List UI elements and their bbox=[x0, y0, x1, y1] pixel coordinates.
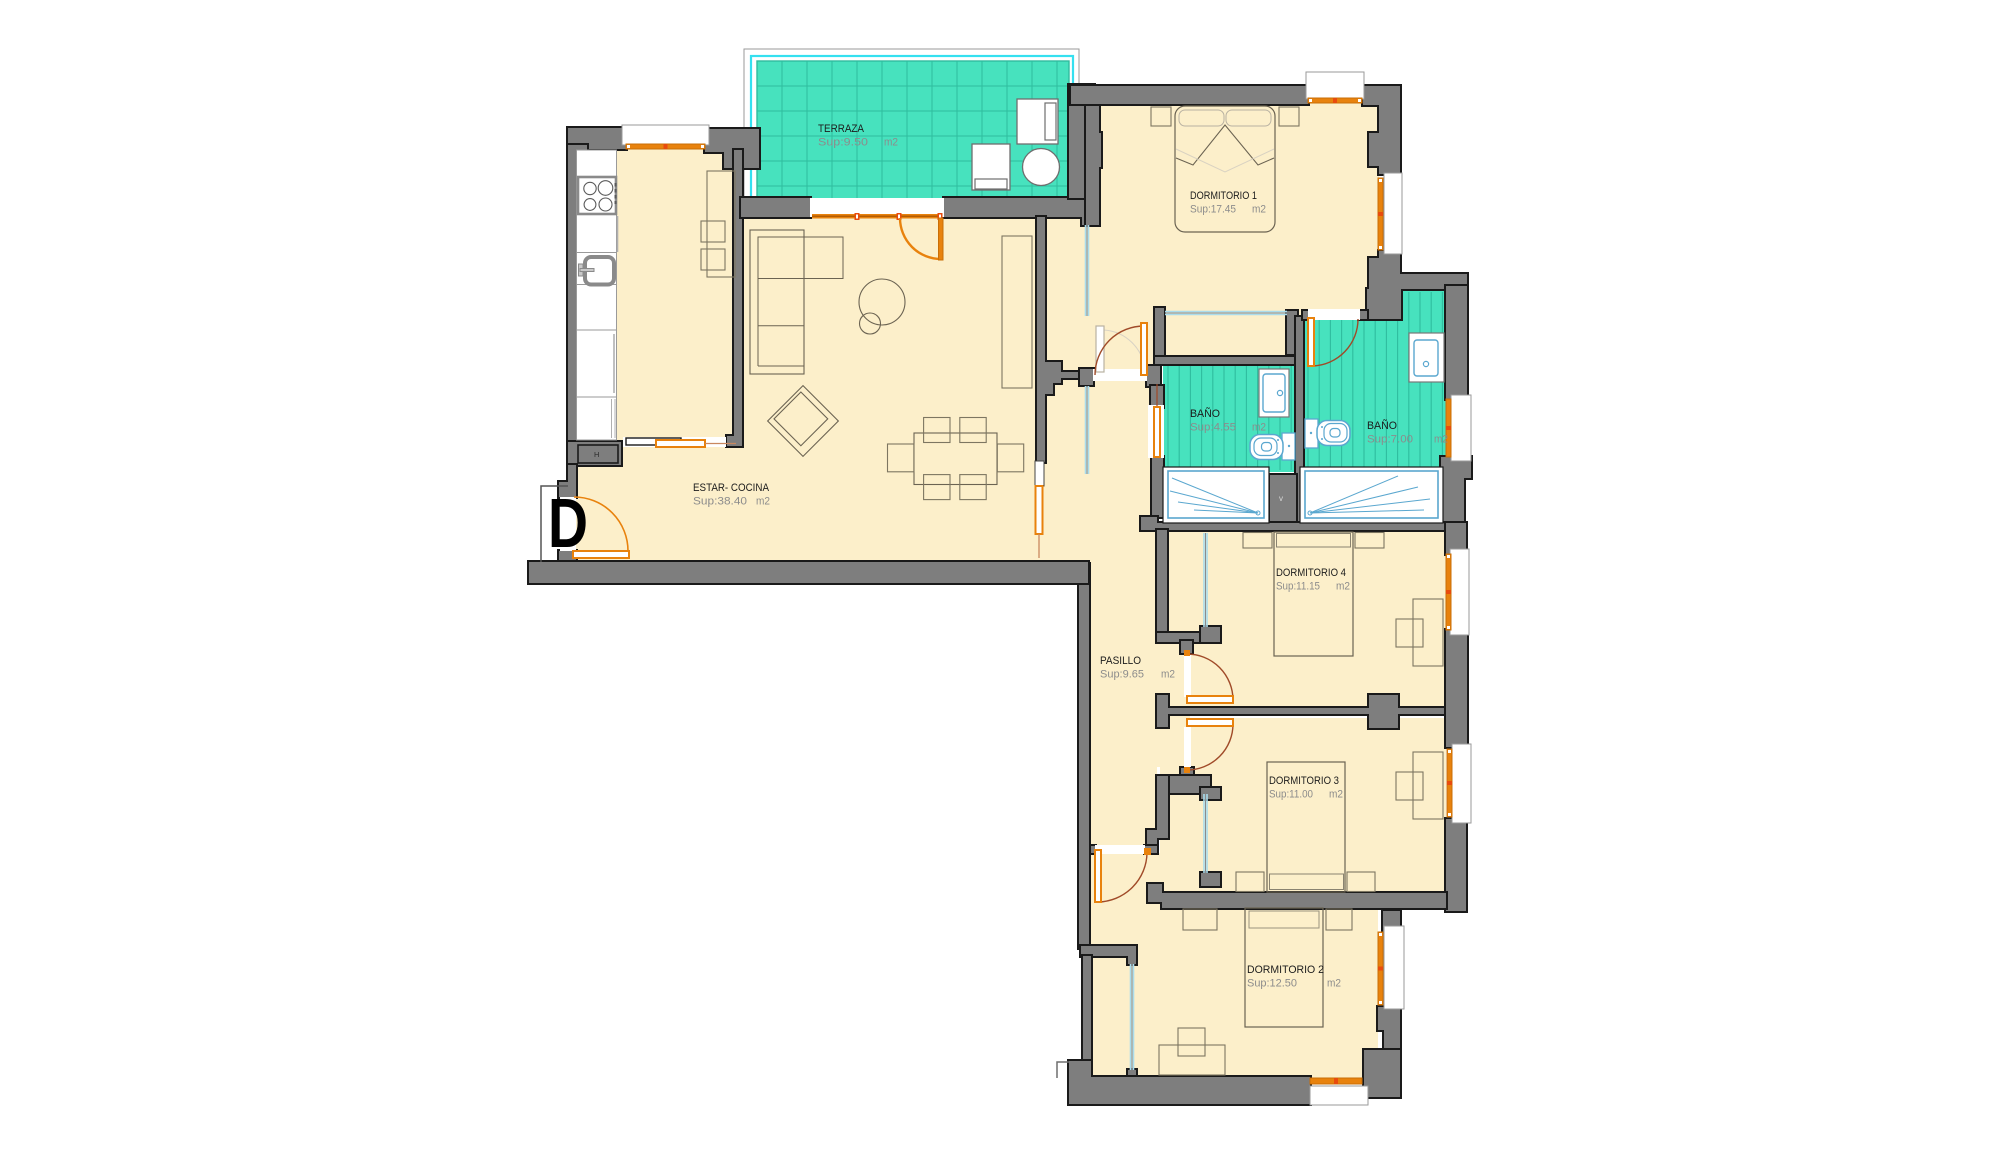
svg-text:Sup:12.50: Sup:12.50 bbox=[1247, 978, 1297, 990]
svg-text:BAÑO: BAÑO bbox=[1367, 419, 1397, 432]
svg-text:DORMITORIO 1: DORMITORIO 1 bbox=[1190, 190, 1257, 202]
svg-text:PASILLO: PASILLO bbox=[1100, 655, 1141, 667]
svg-text:m2: m2 bbox=[1252, 422, 1266, 434]
svg-text:Sup:11.00: Sup:11.00 bbox=[1269, 789, 1313, 801]
svg-text:Sup:17.45: Sup:17.45 bbox=[1190, 204, 1236, 216]
svg-text:Sup:4.55: Sup:4.55 bbox=[1190, 422, 1236, 434]
svg-text:TERRAZA: TERRAZA bbox=[818, 123, 865, 135]
svg-text:BAÑO: BAÑO bbox=[1190, 407, 1220, 420]
svg-text:DORMITORIO 4: DORMITORIO 4 bbox=[1276, 567, 1346, 579]
svg-text:v: v bbox=[1279, 494, 1283, 503]
svg-text:m2: m2 bbox=[1327, 978, 1341, 990]
svg-text:m2: m2 bbox=[756, 496, 770, 508]
svg-text:Sup:9.65: Sup:9.65 bbox=[1100, 669, 1144, 681]
svg-text:H: H bbox=[594, 450, 599, 459]
svg-text:DORMITORIO 3: DORMITORIO 3 bbox=[1269, 775, 1339, 787]
svg-text:ESTAR- COCINA: ESTAR- COCINA bbox=[693, 482, 770, 494]
svg-text:m2: m2 bbox=[1336, 581, 1350, 593]
svg-text:Sup:11.15: Sup:11.15 bbox=[1276, 581, 1320, 593]
svg-text:DORMITORIO 2: DORMITORIO 2 bbox=[1247, 964, 1324, 976]
svg-text:Sup:7.00: Sup:7.00 bbox=[1367, 434, 1413, 446]
svg-text:m2: m2 bbox=[884, 137, 898, 149]
svg-text:Sup:9.50: Sup:9.50 bbox=[818, 137, 868, 149]
svg-text:m2: m2 bbox=[1161, 669, 1175, 681]
svg-text:m2: m2 bbox=[1252, 204, 1266, 216]
svg-text:m2: m2 bbox=[1434, 434, 1448, 446]
svg-text:D: D bbox=[548, 484, 588, 562]
svg-text:m2: m2 bbox=[1329, 789, 1343, 801]
svg-text:Sup:38.40: Sup:38.40 bbox=[693, 496, 747, 508]
